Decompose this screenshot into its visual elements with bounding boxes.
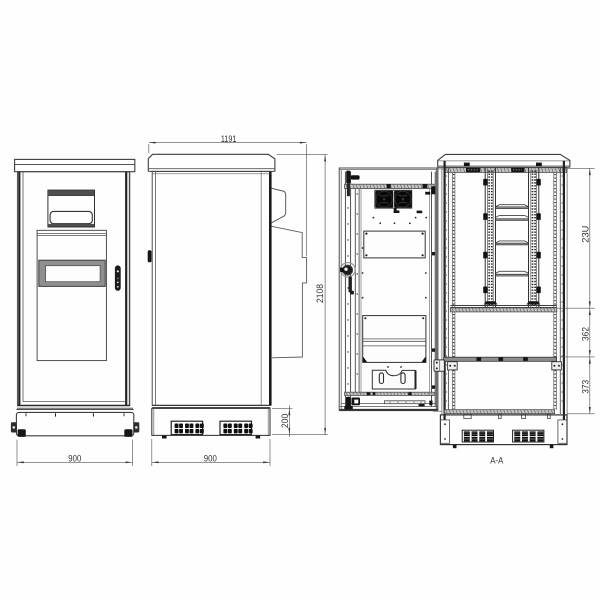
svg-text:900: 900 xyxy=(204,454,217,464)
svg-text:A-A: A-A xyxy=(490,456,503,467)
svg-text:373: 373 xyxy=(581,380,591,394)
svg-text:1191: 1191 xyxy=(221,134,237,144)
svg-text:23U: 23U xyxy=(581,226,591,243)
svg-text:200: 200 xyxy=(280,414,290,429)
svg-text:900: 900 xyxy=(68,454,81,464)
svg-text:362: 362 xyxy=(581,327,591,341)
svg-text:2108: 2108 xyxy=(315,284,325,303)
